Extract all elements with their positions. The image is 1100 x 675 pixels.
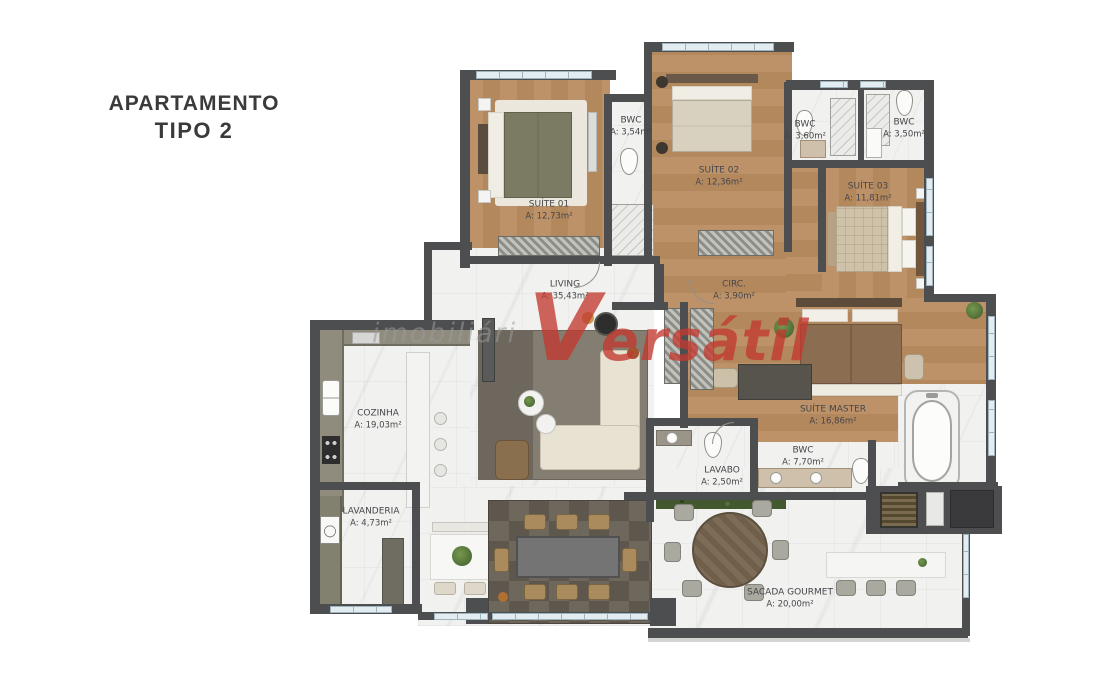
wall-segment	[412, 486, 420, 614]
sink-icon	[666, 432, 678, 444]
wall-segment	[460, 256, 660, 264]
nightstand	[656, 142, 668, 154]
room-area: A: 3,54m²	[610, 127, 652, 138]
chair	[674, 504, 694, 521]
room-label-circ: CIRC. A: 3,90m²	[713, 280, 755, 303]
chair	[682, 580, 702, 597]
deck-edge	[648, 638, 970, 642]
room-area: A: 4,73m²	[343, 518, 400, 529]
wall-segment	[310, 320, 474, 330]
nightstand	[656, 76, 668, 88]
stool	[434, 438, 447, 451]
tv-panel	[482, 318, 495, 382]
terrace-chair	[464, 582, 486, 595]
bar-stool	[836, 580, 856, 596]
room-label-suite-master: SUÍTE MASTER A: 16,86m²	[800, 405, 866, 428]
cooktop-icon	[322, 436, 340, 464]
grill-icon	[880, 492, 918, 528]
wall-segment	[310, 320, 320, 614]
room-area: A: 20,00m²	[747, 599, 833, 610]
round-table	[692, 512, 768, 588]
wall-segment	[858, 88, 864, 168]
chair	[524, 584, 546, 600]
room-name: LIVING	[550, 280, 580, 290]
chair	[556, 584, 578, 600]
wardrobe-hatch	[498, 236, 600, 256]
wall-segment	[624, 492, 876, 500]
wall-segment	[648, 628, 968, 638]
room-name: LAVANDERIA	[343, 507, 400, 517]
chair	[556, 514, 578, 530]
wall-segment	[784, 160, 934, 168]
window	[926, 178, 933, 236]
column-pier	[650, 598, 676, 626]
side-table-dark	[594, 312, 618, 336]
window	[963, 534, 969, 598]
room-label-bwc-master: BWC A: 7,70m²	[782, 446, 824, 469]
suite-03-sheet	[888, 206, 902, 272]
room-name: LAVABO	[704, 466, 740, 476]
suite-01-tv-panel	[588, 112, 597, 172]
room-name: CIRC.	[722, 280, 746, 290]
window	[434, 613, 488, 620]
room-name: COZINHA	[357, 409, 399, 419]
room-name: SACADA GOURMET	[747, 588, 833, 598]
counter-module	[926, 492, 944, 526]
column-pier	[466, 598, 488, 624]
master-headboard	[796, 298, 902, 307]
room-area: A: 3,50m²	[883, 129, 925, 140]
window	[662, 43, 774, 51]
laundry-cabinet	[382, 538, 404, 610]
chair	[588, 514, 610, 530]
plant-icon	[966, 302, 983, 319]
suite-03-pillow	[902, 208, 916, 236]
wall-segment	[612, 302, 668, 310]
room-label-lavabo: LAVABO A: 2,50m²	[701, 466, 743, 489]
vanity	[800, 140, 826, 158]
wall-segment	[646, 418, 654, 522]
wall-segment	[868, 440, 876, 496]
wall-segment	[750, 418, 758, 500]
room-label-bwc-suite-03: BWC A: 3,50m²	[883, 118, 925, 141]
title-line-2: TIPO 2	[96, 118, 292, 144]
room-area: A: 2,50m²	[701, 477, 743, 488]
wall-segment	[818, 168, 826, 272]
dining-table	[516, 536, 620, 578]
room-name: BWC	[893, 118, 914, 128]
window	[820, 81, 848, 88]
room-name: BWC	[792, 446, 813, 456]
bedroom-chair	[904, 354, 924, 380]
sink-icon	[810, 472, 822, 484]
decor-bowl	[498, 592, 508, 602]
wall-segment	[460, 70, 470, 268]
chair	[664, 542, 681, 562]
suite-03-bed	[836, 206, 888, 272]
wall-segment	[644, 42, 652, 264]
wall-segment	[424, 242, 432, 330]
room-label-suite-02: SUÍTE 02 A: 12,36m²	[695, 166, 742, 189]
chair	[494, 548, 509, 572]
room-label-lavanderia: LAVANDERIA A: 4,73m²	[343, 507, 400, 530]
room-area: A: 7,70m²	[782, 457, 824, 468]
room-label-cozinha: COZINHA A: 19,03m²	[354, 409, 401, 432]
wardrobe-hatch	[698, 230, 774, 256]
decor-bowl	[582, 312, 594, 324]
window	[988, 400, 995, 456]
suite-02-pillows	[672, 86, 752, 100]
coffee-table-small	[536, 414, 556, 434]
plant-icon	[524, 396, 535, 407]
window	[926, 246, 933, 286]
suite-03-pillow	[902, 240, 916, 268]
wardrobe-hatch	[690, 308, 714, 390]
suite-01-bed	[504, 112, 572, 198]
chair	[772, 540, 789, 560]
decor-sphere	[627, 347, 639, 359]
master-bed	[800, 324, 902, 384]
suite-03-bench	[828, 212, 836, 266]
chair	[752, 500, 772, 517]
room-area: A: 3,60m²	[784, 131, 826, 142]
chaise	[712, 368, 738, 388]
room-area: A: 35,43m²	[541, 291, 588, 302]
room-area: A: 12,73m²	[525, 211, 572, 222]
terrace-bench	[432, 522, 492, 532]
suite-01-headboard	[478, 124, 488, 174]
sliding-door-glass	[492, 613, 648, 620]
room-name: SUÍTE MASTER	[800, 405, 866, 415]
suite-02-headboard	[666, 74, 758, 83]
room-name: BWC	[620, 116, 641, 126]
wall-segment	[924, 294, 994, 302]
bathtub-basin	[912, 400, 952, 482]
page-title: APARTAMENTO TIPO 2	[96, 92, 292, 144]
bar-stool	[866, 580, 886, 596]
suite-02-bed	[672, 100, 752, 152]
room-label-suite-03: SUÍTE 03 A: 11,81m²	[844, 182, 891, 205]
room-area: A: 11,81m²	[844, 193, 891, 204]
room-area: A: 12,36m²	[695, 177, 742, 188]
chair	[524, 514, 546, 530]
master-pillow	[802, 309, 848, 322]
suite-01-pillows	[488, 112, 504, 198]
armchair	[495, 440, 529, 480]
faucet-icon	[926, 393, 938, 398]
wall-segment	[646, 418, 758, 426]
plant-icon	[452, 546, 472, 566]
window	[988, 316, 995, 380]
vanity	[866, 128, 882, 158]
window	[330, 606, 392, 613]
wall-segment	[310, 482, 420, 490]
stool	[434, 412, 447, 425]
room-name: BWC	[794, 120, 815, 130]
room-name: SUÍTE 02	[699, 166, 739, 176]
wall-segment	[680, 302, 688, 428]
chair	[588, 584, 610, 600]
plant-icon	[774, 318, 794, 338]
room-label-sacada: SACADA GOURMET A: 20,00m²	[747, 588, 833, 611]
bar-counter	[826, 552, 946, 578]
master-foot-runner	[800, 384, 902, 396]
chair	[622, 548, 637, 572]
sink-icon	[322, 380, 340, 416]
room-name: SUÍTE 03	[848, 182, 888, 192]
room-label-bwc-suite-01: BWC A: 3,54m²	[610, 116, 652, 139]
counter-module-dark	[950, 490, 994, 528]
window	[860, 81, 886, 88]
title-line-1: APARTAMENTO	[96, 92, 292, 116]
fridge	[352, 332, 380, 344]
room-name: SUÍTE 01	[529, 200, 569, 210]
sink-icon	[770, 472, 782, 484]
washer-icon	[320, 516, 340, 544]
bar-stool	[896, 580, 916, 596]
room-area: A: 16,86m²	[800, 416, 866, 427]
floor-plan-page: APARTAMENTO TIPO 2	[0, 0, 1100, 675]
room-area: A: 19,03m²	[354, 420, 401, 431]
wall-segment	[898, 482, 998, 490]
shower	[830, 98, 856, 156]
laundry-counter	[318, 496, 342, 604]
window	[476, 71, 592, 79]
stool	[434, 464, 447, 477]
master-rug	[738, 364, 812, 400]
master-pillow	[852, 309, 898, 322]
nightstand	[478, 190, 491, 203]
room-label-suite-01: SUÍTE 01 A: 12,73m²	[525, 200, 572, 223]
room-label-bwc-suite-02: BWC A: 3,60m²	[784, 120, 826, 143]
sofa-horizontal	[540, 425, 640, 470]
plant-icon	[918, 558, 927, 567]
terrace-chair	[434, 582, 456, 595]
room-label-living: LIVING A: 35,43m²	[541, 280, 588, 303]
nightstand	[478, 98, 491, 111]
room-area: A: 3,90m²	[713, 291, 755, 302]
